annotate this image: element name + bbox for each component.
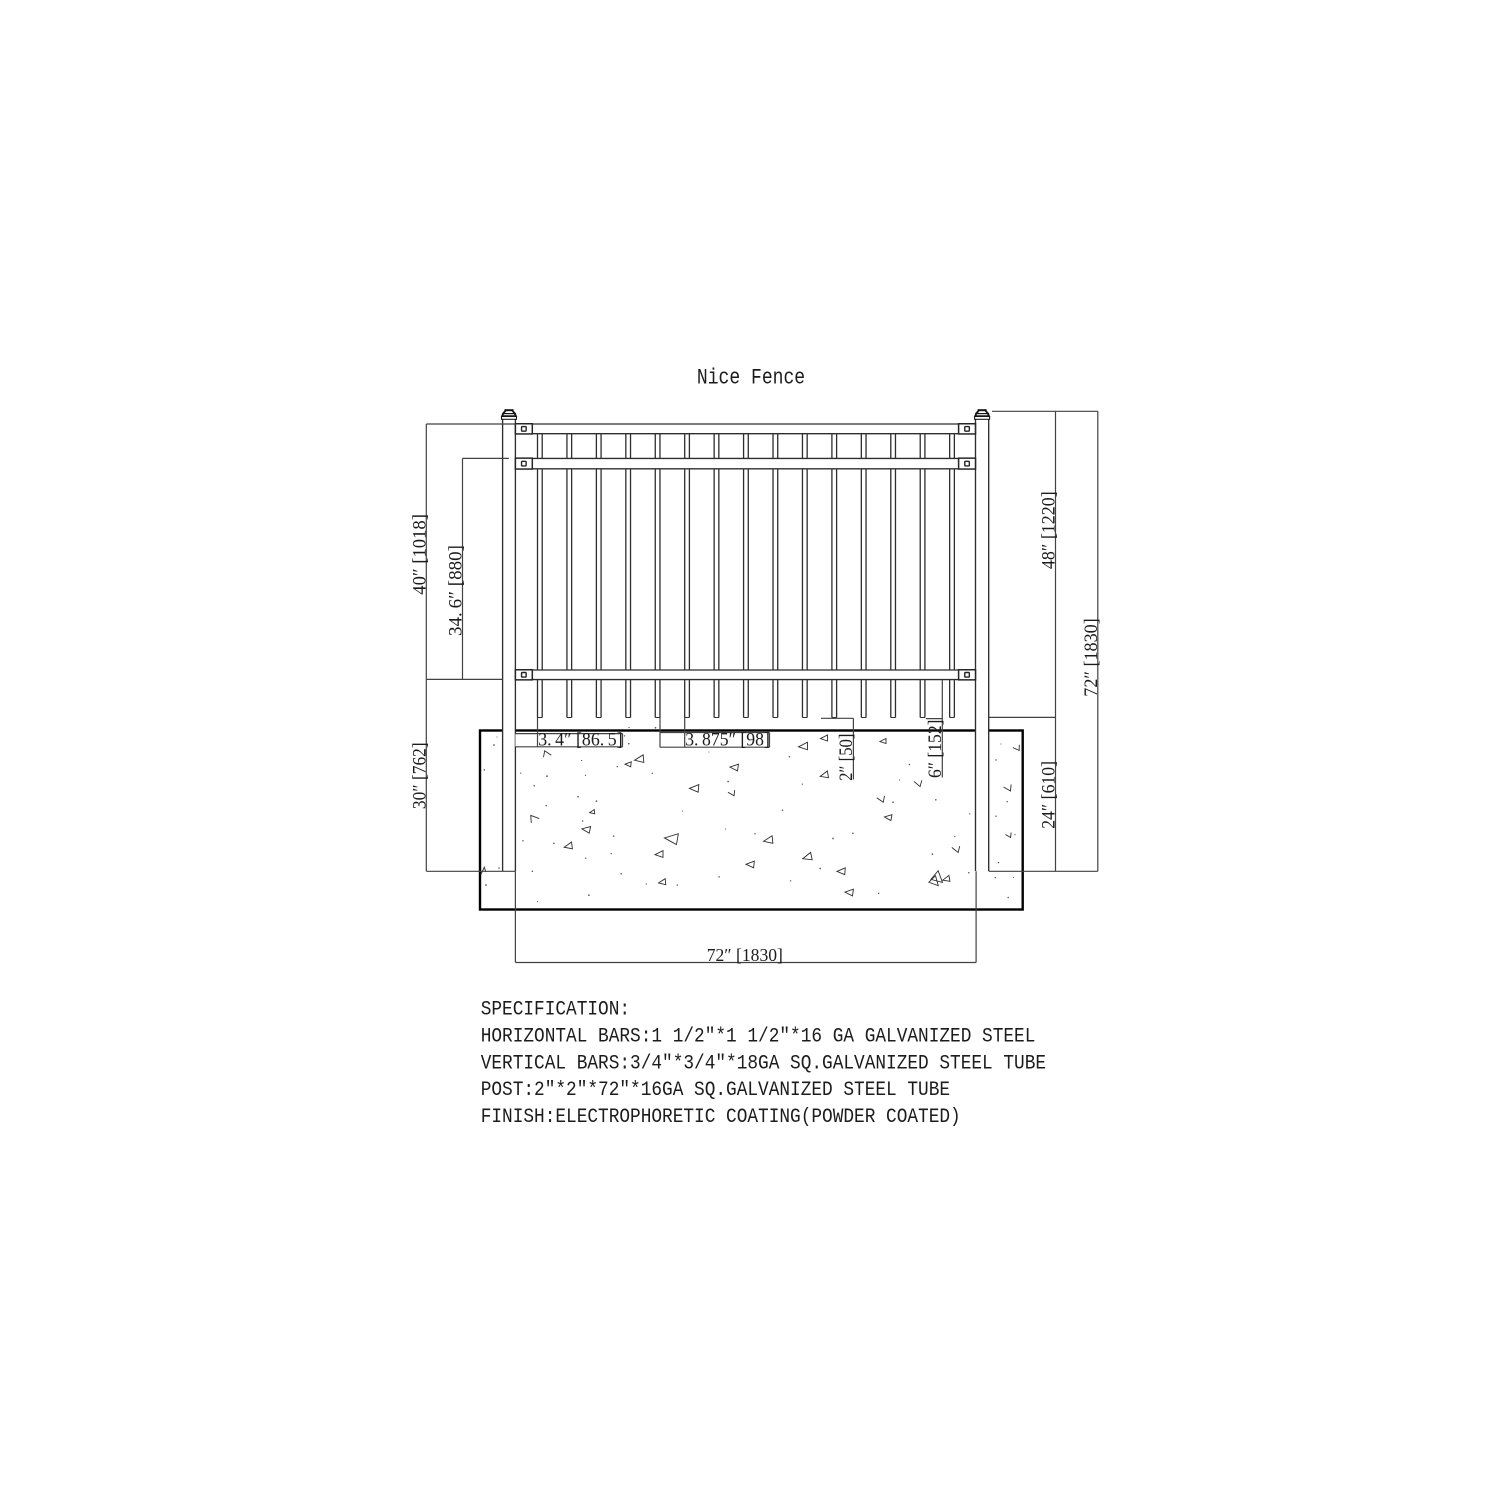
svg-text:FINISH:ELECTROPHORETIC COATING: FINISH:ELECTROPHORETIC COATING(POWDER CO… (481, 1105, 961, 1129)
svg-text:6″ [152]: 6″ [152] (924, 720, 945, 778)
svg-text:3. 4″ [86. 5]: 3. 4″ [86. 5] (538, 729, 622, 750)
svg-text:Nice Fence: Nice Fence (697, 366, 805, 391)
svg-text:72″ [1830]: 72″ [1830] (707, 945, 783, 965)
svg-text:24″ [610]: 24″ [610] (1038, 761, 1059, 829)
svg-text:34. 6″ [880]: 34. 6″ [880] (446, 545, 467, 636)
svg-text:POST:2″*2″*72″*16GA SQ.GALVANI: POST:2″*2″*72″*16GA SQ.GALVANIZED STEEL … (481, 1078, 950, 1102)
svg-text:3. 875″ [98]: 3. 875″ [98] (685, 729, 770, 750)
svg-text:48″ [1220]: 48″ [1220] (1038, 491, 1059, 569)
svg-text:SPECIFICATION:: SPECIFICATION: (481, 998, 630, 1022)
svg-text:2″ [50]: 2″ [50] (835, 734, 856, 781)
svg-text:VERTICAL BARS:3/4″*3/4″*18GA S: VERTICAL BARS:3/4″*3/4″*18GA SQ.GALVANIZ… (481, 1051, 1046, 1075)
svg-text:30″ [762]: 30″ [762] (409, 742, 430, 809)
svg-text:72″ [1830]: 72″ [1830] (1081, 618, 1102, 696)
svg-text:HORIZONTAL BARS:1 1/2″*1 1/2″*: HORIZONTAL BARS:1 1/2″*1 1/2″*16 GA GALV… (481, 1024, 1036, 1048)
svg-text:40″ [1018]: 40″ [1018] (409, 514, 430, 595)
